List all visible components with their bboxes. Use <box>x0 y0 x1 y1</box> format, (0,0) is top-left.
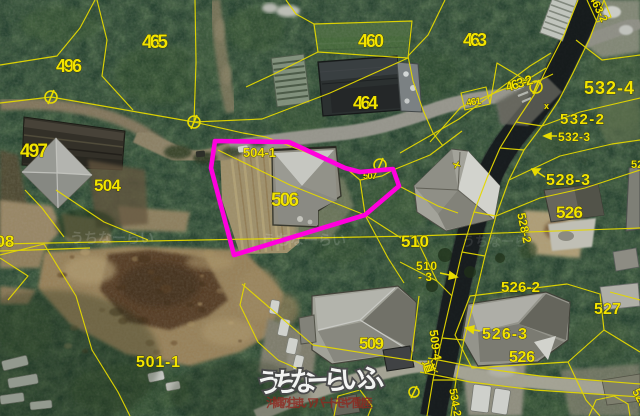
svg-text:532-3: 532-3 <box>558 130 590 144</box>
svg-text:526: 526 <box>556 203 583 222</box>
svg-text:x: x <box>544 101 549 111</box>
svg-text:526-2: 526-2 <box>501 279 540 296</box>
svg-text:461: 461 <box>466 96 483 109</box>
svg-text:うちなーら: うちなーら <box>462 234 527 249</box>
svg-text:463: 463 <box>463 30 487 50</box>
svg-text:497: 497 <box>20 141 48 162</box>
svg-text:506: 506 <box>271 190 299 211</box>
svg-text:501-1: 501-1 <box>136 354 180 371</box>
svg-text:532-2: 532-2 <box>560 111 604 128</box>
svg-text:526: 526 <box>509 349 535 366</box>
svg-text:527: 527 <box>594 301 621 318</box>
svg-text:460: 460 <box>358 31 384 51</box>
svg-text:504-1: 504-1 <box>243 145 276 160</box>
svg-text:うちなーらい: うちなーらい <box>70 230 154 246</box>
svg-text:沖縄の住まいアパートモキ不動産: 沖縄の住まいアパートモキ不動産 <box>266 395 373 410</box>
svg-text:464: 464 <box>353 93 378 113</box>
svg-text:-3: -3 <box>418 270 432 284</box>
svg-text:532-4: 532-4 <box>584 78 634 98</box>
svg-text:うちなーらいふ: うちなーらいふ <box>255 363 384 399</box>
svg-text:528-3: 528-3 <box>546 172 590 189</box>
svg-text:509: 509 <box>359 334 384 353</box>
svg-text:504: 504 <box>94 176 122 195</box>
svg-text:528: 528 <box>631 159 640 171</box>
svg-text:465: 465 <box>142 32 168 53</box>
svg-text:496: 496 <box>56 56 82 76</box>
svg-text:526-3: 526-3 <box>482 326 527 343</box>
svg-text:508: 508 <box>0 232 14 251</box>
svg-text:510: 510 <box>401 232 429 251</box>
